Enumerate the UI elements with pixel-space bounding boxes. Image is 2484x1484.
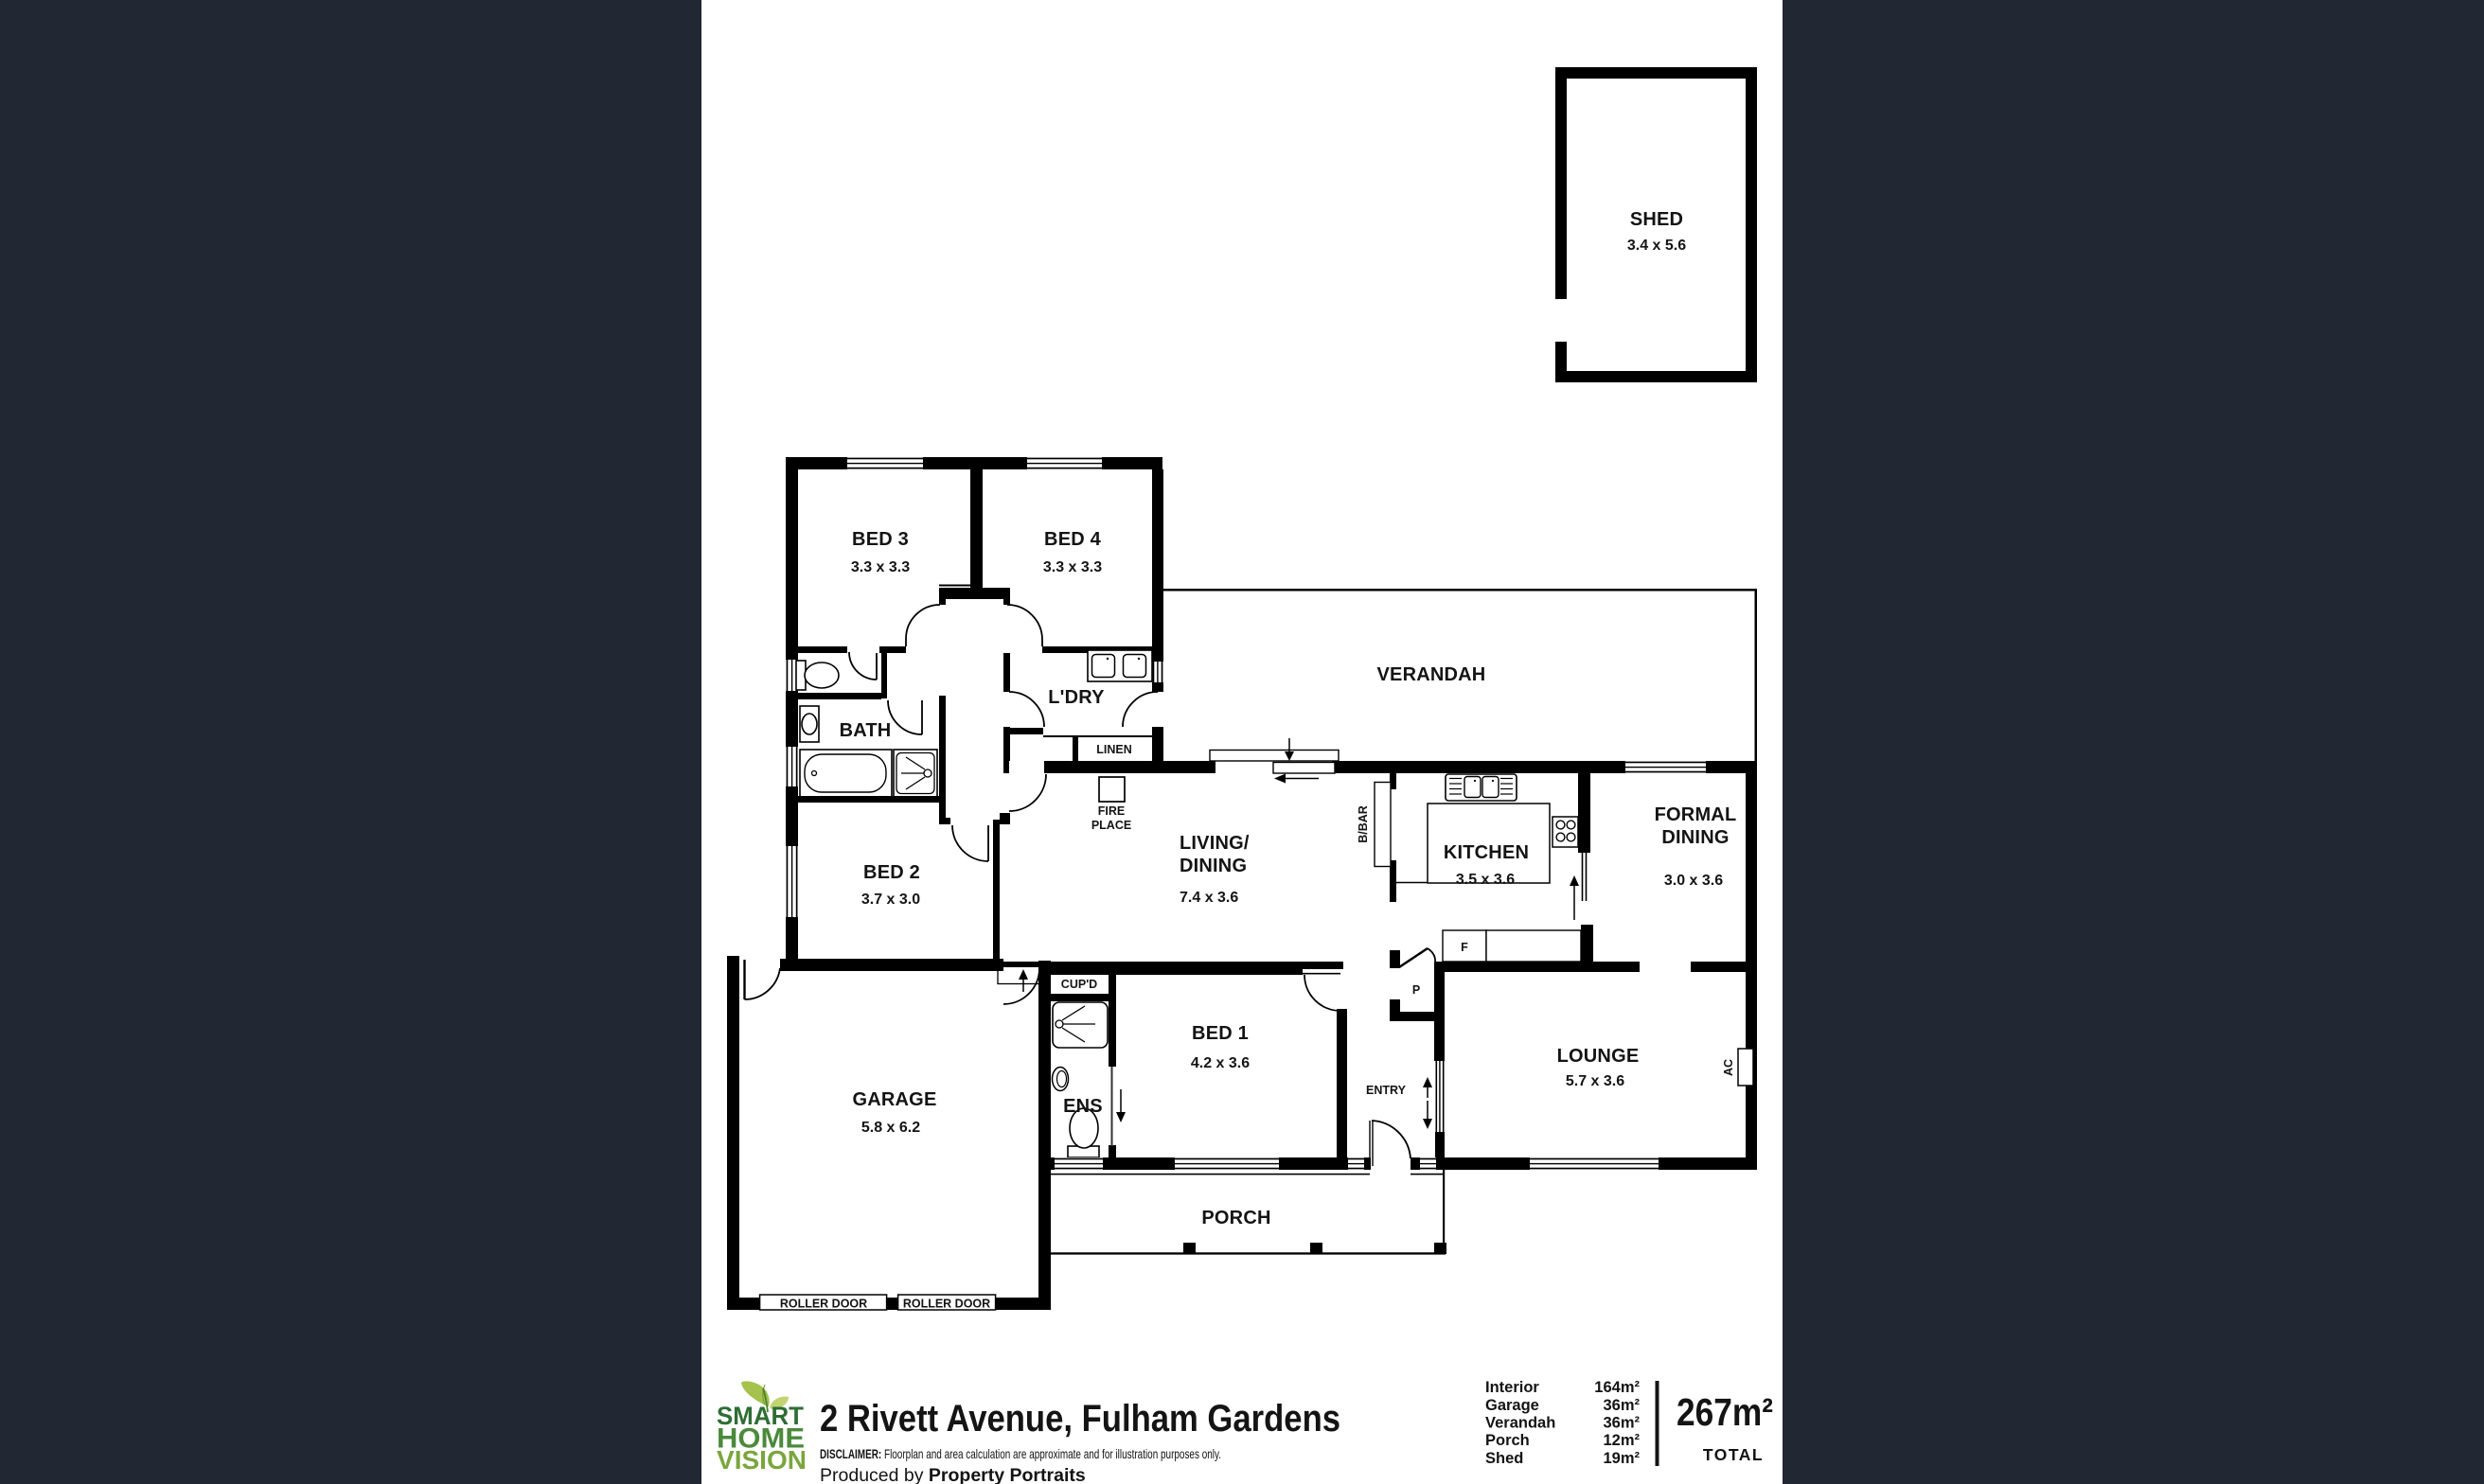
svg-text:BED 4: BED 4 bbox=[1044, 529, 1102, 550]
svg-text:Produced by Property Portraits: Produced by Property Portraits bbox=[820, 1465, 1086, 1484]
svg-text:7.4 x 3.6: 7.4 x 3.6 bbox=[1180, 890, 1238, 906]
svg-text:FIRE: FIRE bbox=[1098, 804, 1125, 818]
svg-text:LIVING/: LIVING/ bbox=[1180, 833, 1250, 854]
svg-text:Porch: Porch bbox=[1485, 1432, 1530, 1449]
svg-text:BATH: BATH bbox=[840, 720, 892, 741]
svg-text:ENS: ENS bbox=[1063, 1096, 1103, 1117]
svg-text:3.0 x 3.6: 3.0 x 3.6 bbox=[1664, 873, 1723, 889]
svg-text:36m²: 36m² bbox=[1603, 1397, 1640, 1414]
svg-text:36m²: 36m² bbox=[1603, 1415, 1640, 1432]
svg-text:GARAGE: GARAGE bbox=[853, 1089, 937, 1110]
svg-text:AC: AC bbox=[1722, 1059, 1735, 1076]
svg-text:B/BAR: B/BAR bbox=[1357, 805, 1370, 843]
svg-text:4.2 x 3.6: 4.2 x 3.6 bbox=[1191, 1055, 1250, 1071]
svg-text:3.7 x 3.0: 3.7 x 3.0 bbox=[861, 892, 920, 908]
svg-text:Verandah: Verandah bbox=[1485, 1415, 1555, 1432]
svg-text:BED 3: BED 3 bbox=[852, 529, 909, 550]
svg-text:L'DRY: L'DRY bbox=[1048, 687, 1105, 708]
svg-text:3.5 x 3.6: 3.5 x 3.6 bbox=[1456, 872, 1515, 888]
svg-text:VISION: VISION bbox=[717, 1445, 807, 1475]
svg-text:DINING: DINING bbox=[1180, 856, 1247, 876]
svg-text:267m²: 267m² bbox=[1677, 1390, 1773, 1434]
svg-text:5.8 x 6.2: 5.8 x 6.2 bbox=[861, 1120, 920, 1136]
svg-text:BED 1: BED 1 bbox=[1192, 1023, 1249, 1044]
svg-text:LOUNGE: LOUNGE bbox=[1557, 1046, 1640, 1067]
svg-text:3.3 x 3.3: 3.3 x 3.3 bbox=[851, 559, 910, 575]
svg-text:VERANDAH: VERANDAH bbox=[1377, 664, 1486, 685]
svg-text:FORMAL: FORMAL bbox=[1655, 804, 1737, 825]
svg-text:3.3 x 3.3: 3.3 x 3.3 bbox=[1043, 559, 1102, 575]
svg-text:CUP'D: CUP'D bbox=[1061, 978, 1097, 991]
svg-text:KITCHEN: KITCHEN bbox=[1444, 842, 1529, 863]
svg-text:19m²: 19m² bbox=[1603, 1450, 1640, 1467]
svg-text:PORCH: PORCH bbox=[1201, 1208, 1270, 1228]
svg-text:ENTRY: ENTRY bbox=[1366, 1084, 1407, 1097]
svg-text:12m²: 12m² bbox=[1603, 1432, 1640, 1449]
svg-text:Interior: Interior bbox=[1485, 1379, 1539, 1396]
svg-text:P: P bbox=[1412, 983, 1420, 997]
svg-text:5.7 x 3.6: 5.7 x 3.6 bbox=[1566, 1073, 1624, 1089]
svg-text:164m²: 164m² bbox=[1594, 1379, 1640, 1396]
svg-text:Shed: Shed bbox=[1485, 1450, 1523, 1467]
svg-text:DISCLAIMER: Floorplan and area: DISCLAIMER: Floorplan and area calculati… bbox=[820, 1446, 1221, 1461]
svg-text:DINING: DINING bbox=[1661, 827, 1729, 848]
svg-text:F: F bbox=[1461, 941, 1468, 954]
svg-text:PLACE: PLACE bbox=[1091, 819, 1131, 832]
svg-text:ROLLER DOOR: ROLLER DOOR bbox=[780, 1298, 867, 1311]
svg-text:LINEN: LINEN bbox=[1096, 743, 1132, 756]
svg-text:TOTAL: TOTAL bbox=[1703, 1445, 1764, 1464]
svg-text:SHED: SHED bbox=[1630, 209, 1683, 230]
svg-text:Garage: Garage bbox=[1485, 1397, 1539, 1414]
svg-text:BED 2: BED 2 bbox=[863, 862, 920, 883]
svg-text:ROLLER DOOR: ROLLER DOOR bbox=[903, 1298, 990, 1311]
svg-text:2 Rivett Avenue, Fulham Garden: 2 Rivett Avenue, Fulham Gardens bbox=[820, 1398, 1340, 1440]
svg-text:3.4 x 5.6: 3.4 x 5.6 bbox=[1627, 238, 1686, 254]
